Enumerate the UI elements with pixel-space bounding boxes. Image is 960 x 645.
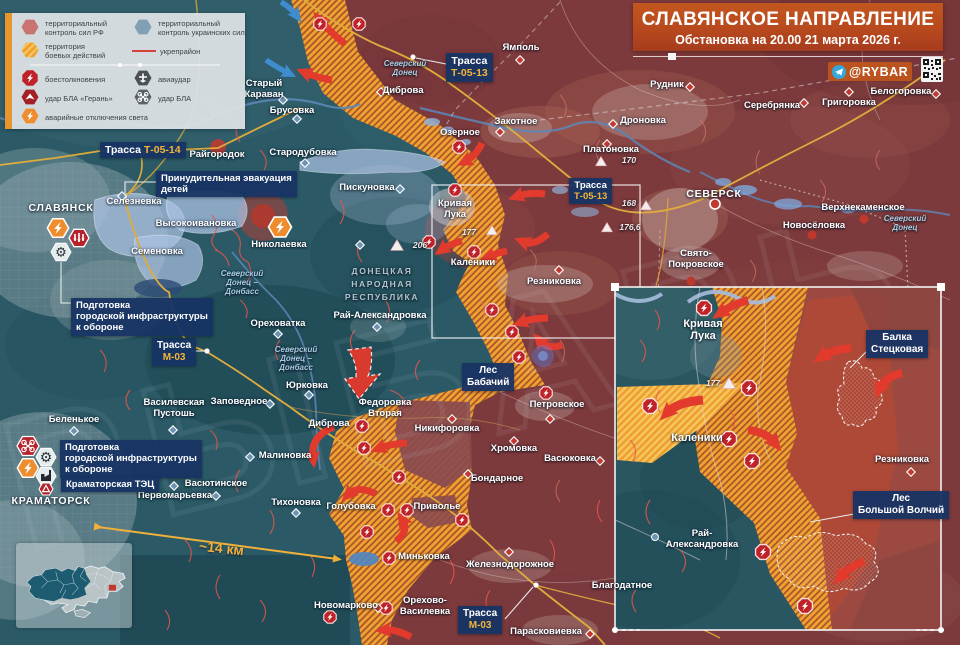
svg-text:⚙: ⚙: [40, 449, 53, 465]
svg-text:⚙: ⚙: [55, 245, 67, 260]
